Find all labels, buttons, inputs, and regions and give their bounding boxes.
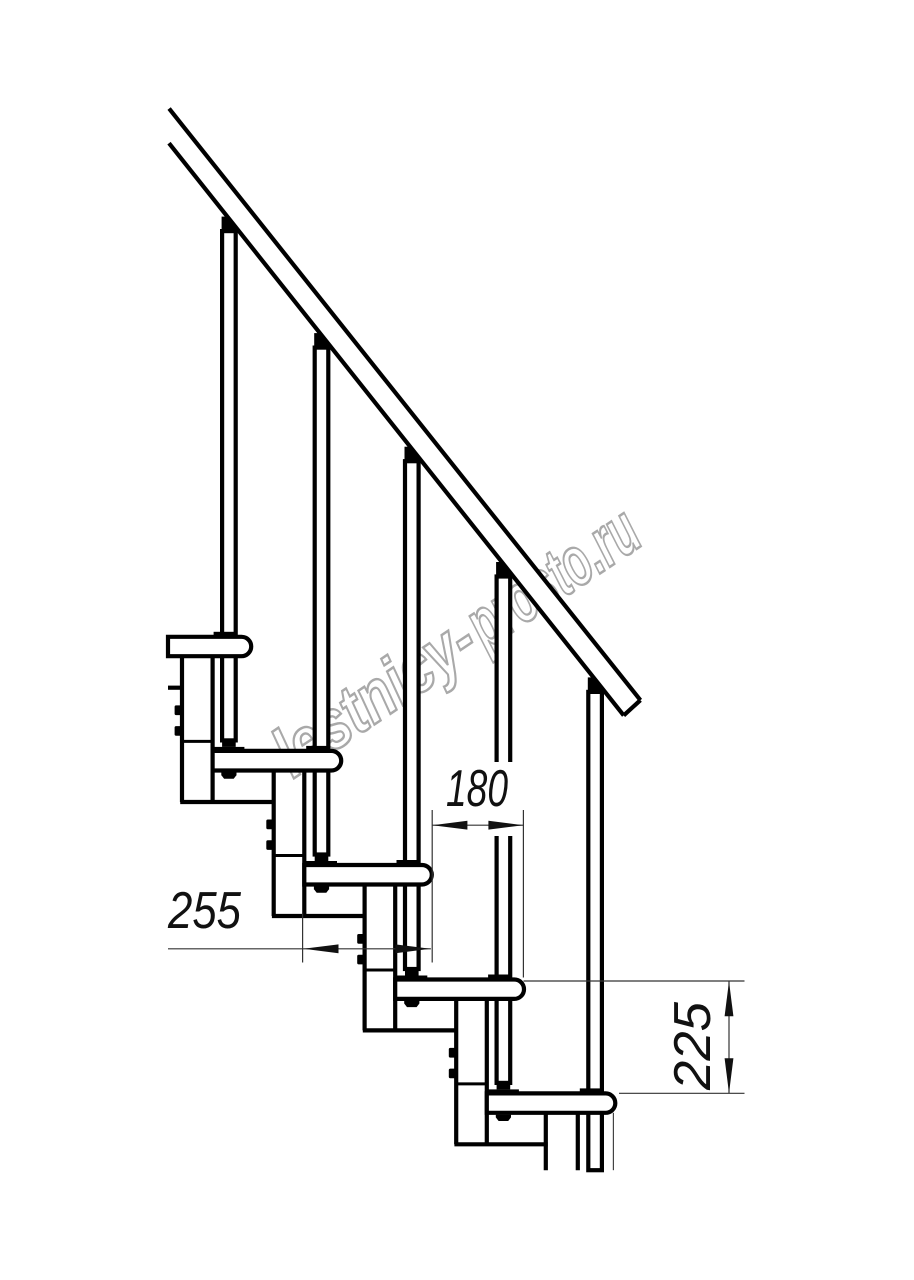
- svg-text:225: 225: [664, 1001, 722, 1091]
- svg-text:255: 255: [167, 882, 242, 940]
- svg-text:180: 180: [446, 760, 508, 818]
